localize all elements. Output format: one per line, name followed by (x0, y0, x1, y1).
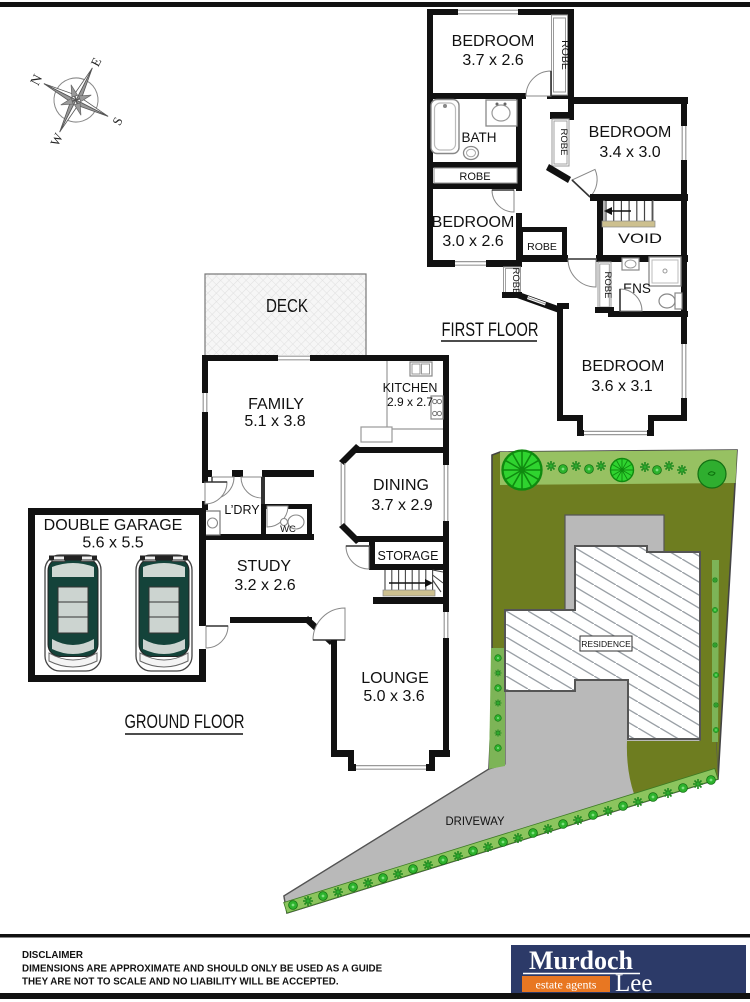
svg-text:BEDROOM: BEDROOM (432, 214, 515, 231)
svg-text:S: S (109, 114, 126, 127)
svg-text:ROBE: ROBE (602, 272, 613, 299)
svg-text:VOID: VOID (618, 230, 662, 246)
svg-text:BEDROOM: BEDROOM (452, 33, 535, 50)
svg-text:ROBE: ROBE (558, 129, 569, 156)
svg-text:ROBE: ROBE (527, 241, 557, 253)
svg-text:5.0 x 3.6: 5.0 x 3.6 (363, 688, 424, 705)
svg-text:DIMENSIONS ARE APPROXIMATE AND: DIMENSIONS ARE APPROXIMATE AND SHOULD ON… (22, 964, 383, 975)
svg-text:3.2 x 2.6: 3.2 x 2.6 (234, 577, 295, 594)
svg-text:3.7 x 2.6: 3.7 x 2.6 (462, 52, 523, 69)
svg-text:W: W (47, 130, 66, 148)
svg-text:L’DRY: L’DRY (224, 503, 260, 517)
svg-text:DRIVEWAY: DRIVEWAY (446, 816, 505, 828)
svg-text:3.0 x 2.6: 3.0 x 2.6 (442, 233, 503, 250)
svg-text:STUDY: STUDY (237, 558, 292, 575)
svg-text:3.6 x 3.1: 3.6 x 3.1 (591, 378, 652, 395)
svg-text:KITCHEN: KITCHEN (383, 381, 438, 395)
svg-text:FIRST FLOOR: FIRST FLOOR (442, 320, 539, 341)
svg-text:DOUBLE GARAGE: DOUBLE GARAGE (44, 517, 183, 534)
svg-text:N: N (28, 72, 46, 88)
svg-text:2.9 x 2.7: 2.9 x 2.7 (387, 395, 433, 409)
svg-text:DISCLAIMER: DISCLAIMER (22, 950, 83, 961)
svg-text:THEY ARE NOT TO SCALE AND NO L: THEY ARE NOT TO SCALE AND NO LIABILITY W… (22, 977, 339, 988)
svg-text:WC: WC (280, 524, 296, 535)
svg-text:ROBE: ROBE (559, 40, 571, 70)
svg-text:LOUNGE: LOUNGE (361, 670, 429, 687)
svg-text:5.1 x 3.8: 5.1 x 3.8 (244, 413, 305, 430)
svg-text:Lee: Lee (615, 970, 652, 997)
svg-text:DINING: DINING (373, 477, 429, 494)
svg-text:BEDROOM: BEDROOM (589, 124, 672, 141)
svg-text:GROUND FLOOR: GROUND FLOOR (125, 712, 245, 733)
svg-text:BATH: BATH (461, 130, 496, 145)
svg-text:estate agents: estate agents (536, 978, 597, 992)
svg-text:DECK: DECK (266, 296, 308, 316)
svg-text:STORAGE: STORAGE (378, 549, 439, 563)
svg-text:3.7 x 2.9: 3.7 x 2.9 (371, 497, 432, 514)
svg-text:5.6 x 5.5: 5.6 x 5.5 (82, 535, 143, 552)
svg-text:ROBE: ROBE (510, 268, 521, 295)
svg-text:FAMILY: FAMILY (248, 396, 304, 413)
svg-text:ROBE: ROBE (459, 171, 490, 183)
svg-text:E: E (87, 55, 104, 69)
svg-text:3.4 x 3.0: 3.4 x 3.0 (599, 144, 660, 161)
svg-text:RESIDENCE: RESIDENCE (581, 639, 631, 649)
svg-text:BEDROOM: BEDROOM (582, 358, 665, 375)
